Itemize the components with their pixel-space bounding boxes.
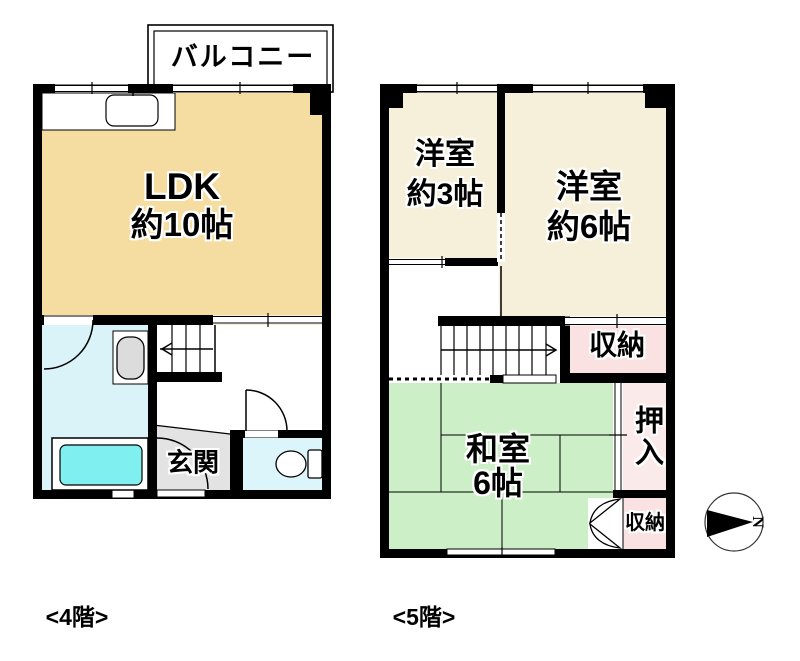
floor-label-4f: <4階>: [46, 605, 109, 631]
storage-upper-label: 収納: [589, 329, 645, 360]
floorplan-drawing: [0, 0, 800, 661]
toilet-icon: [276, 450, 322, 478]
compass-north-label: N: [748, 516, 766, 528]
oshiire-label: 押入: [632, 405, 661, 469]
ldk-name: LDK: [131, 166, 234, 207]
western6-size: 約6帖: [547, 207, 631, 247]
bath-vent: [112, 490, 134, 498]
window-5f-top-left: [417, 82, 497, 94]
tatami-name: 和室: [466, 432, 530, 466]
ldk-label: LDK 約10帖: [131, 166, 234, 244]
floor-label-5f: <5階>: [393, 605, 456, 631]
storage-lower-label: 収納: [625, 512, 665, 534]
kitchen-counter: [42, 87, 175, 130]
western3-label: 洋室 約3帖: [407, 135, 484, 215]
window-5f-top-right: [533, 82, 643, 94]
stairs-5f-bottom-edge: [389, 375, 556, 383]
plan-4f: [33, 25, 333, 499]
tatami-label: 和室 6帖: [466, 432, 530, 500]
western3-name: 洋室: [407, 135, 484, 175]
washbasin-icon: [113, 331, 148, 384]
bathtub-icon: [52, 438, 148, 490]
balcony-label: バルコニー: [171, 42, 315, 72]
western3-size: 約3帖: [407, 175, 484, 215]
stairs-4f: [160, 325, 215, 372]
bifold-door-storage-lower: [588, 498, 623, 549]
western6-label: 洋室 約6帖: [547, 167, 631, 247]
tatami-size: 6帖: [466, 466, 530, 500]
western6-name: 洋室: [547, 167, 631, 207]
floorplan-canvas: バルコニー LDK 約10帖 玄関 洋室 約3帖 洋室 約6帖 和室 6帖 収納…: [0, 0, 800, 661]
kitchen-sink-icon: [106, 95, 158, 126]
ldk-size: 約10帖: [131, 207, 234, 244]
window-5f-bottom: [447, 547, 555, 557]
stairs-5f: [441, 326, 556, 375]
genkan-label: 玄関: [167, 448, 219, 477]
window-4f-top-left: [55, 82, 128, 94]
